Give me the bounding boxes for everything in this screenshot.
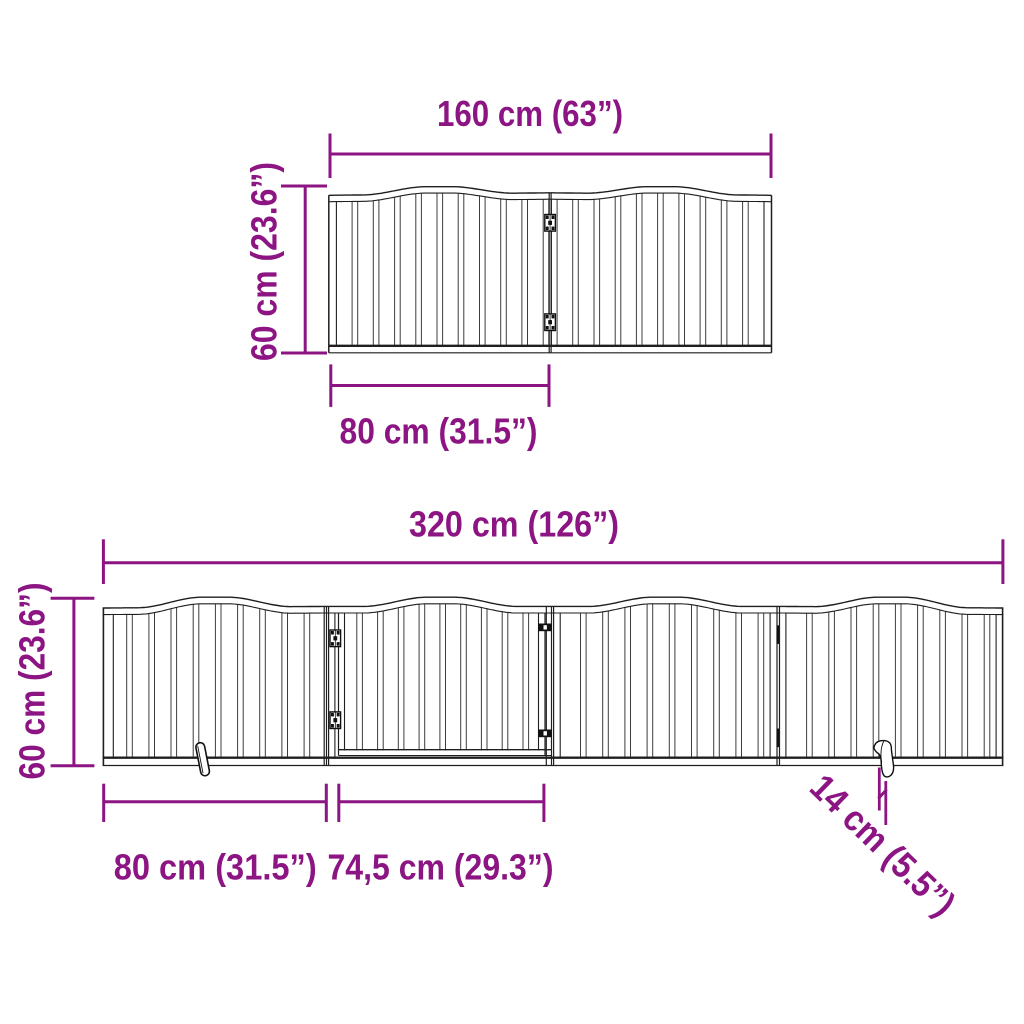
- svg-text:80 cm (31.5”): 80 cm (31.5”): [114, 847, 317, 888]
- svg-text:60 cm (23.6”): 60 cm (23.6”): [244, 162, 285, 361]
- svg-text:60 cm (23.6”): 60 cm (23.6”): [12, 583, 53, 780]
- svg-text:74,5 cm (29.3”): 74,5 cm (29.3”): [328, 847, 554, 888]
- svg-text:160 cm (63”): 160 cm (63”): [437, 93, 623, 134]
- svg-text:80 cm (31.5”): 80 cm (31.5”): [340, 411, 538, 452]
- svg-text:320 cm (126”): 320 cm (126”): [409, 504, 619, 545]
